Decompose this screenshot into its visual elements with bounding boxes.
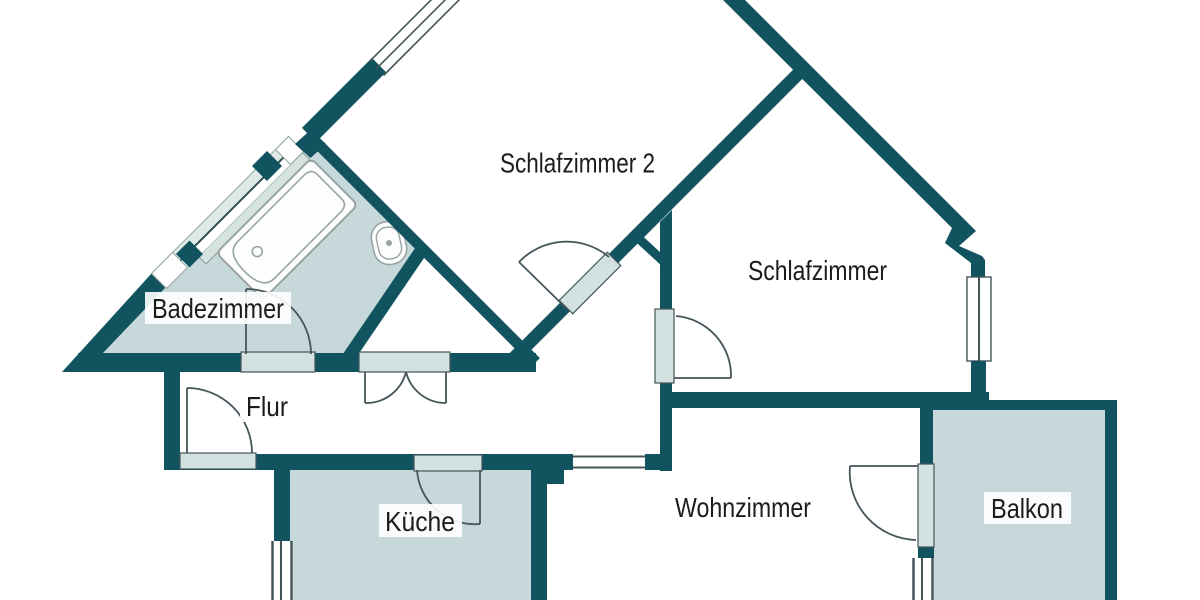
svg-text:Schlafzimmer 2: Schlafzimmer 2	[500, 148, 655, 179]
svg-text:Badezimmer: Badezimmer	[152, 293, 284, 324]
svg-text:Schlafzimmer: Schlafzimmer	[748, 255, 887, 286]
svg-text:Wohnzimmer: Wohnzimmer	[675, 492, 811, 523]
svg-text:Flur: Flur	[246, 391, 288, 422]
svg-text:Balkon: Balkon	[991, 493, 1063, 524]
svg-text:Küche: Küche	[385, 506, 455, 537]
